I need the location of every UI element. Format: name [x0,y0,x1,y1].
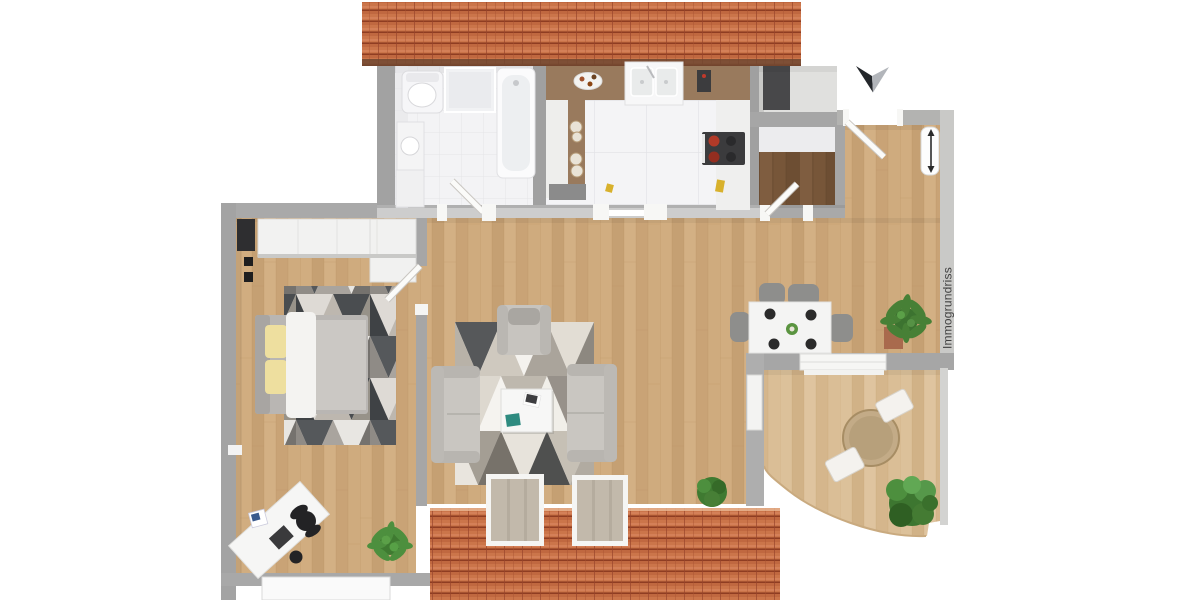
svg-text:Immogrundriss: Immogrundriss [941,267,955,349]
